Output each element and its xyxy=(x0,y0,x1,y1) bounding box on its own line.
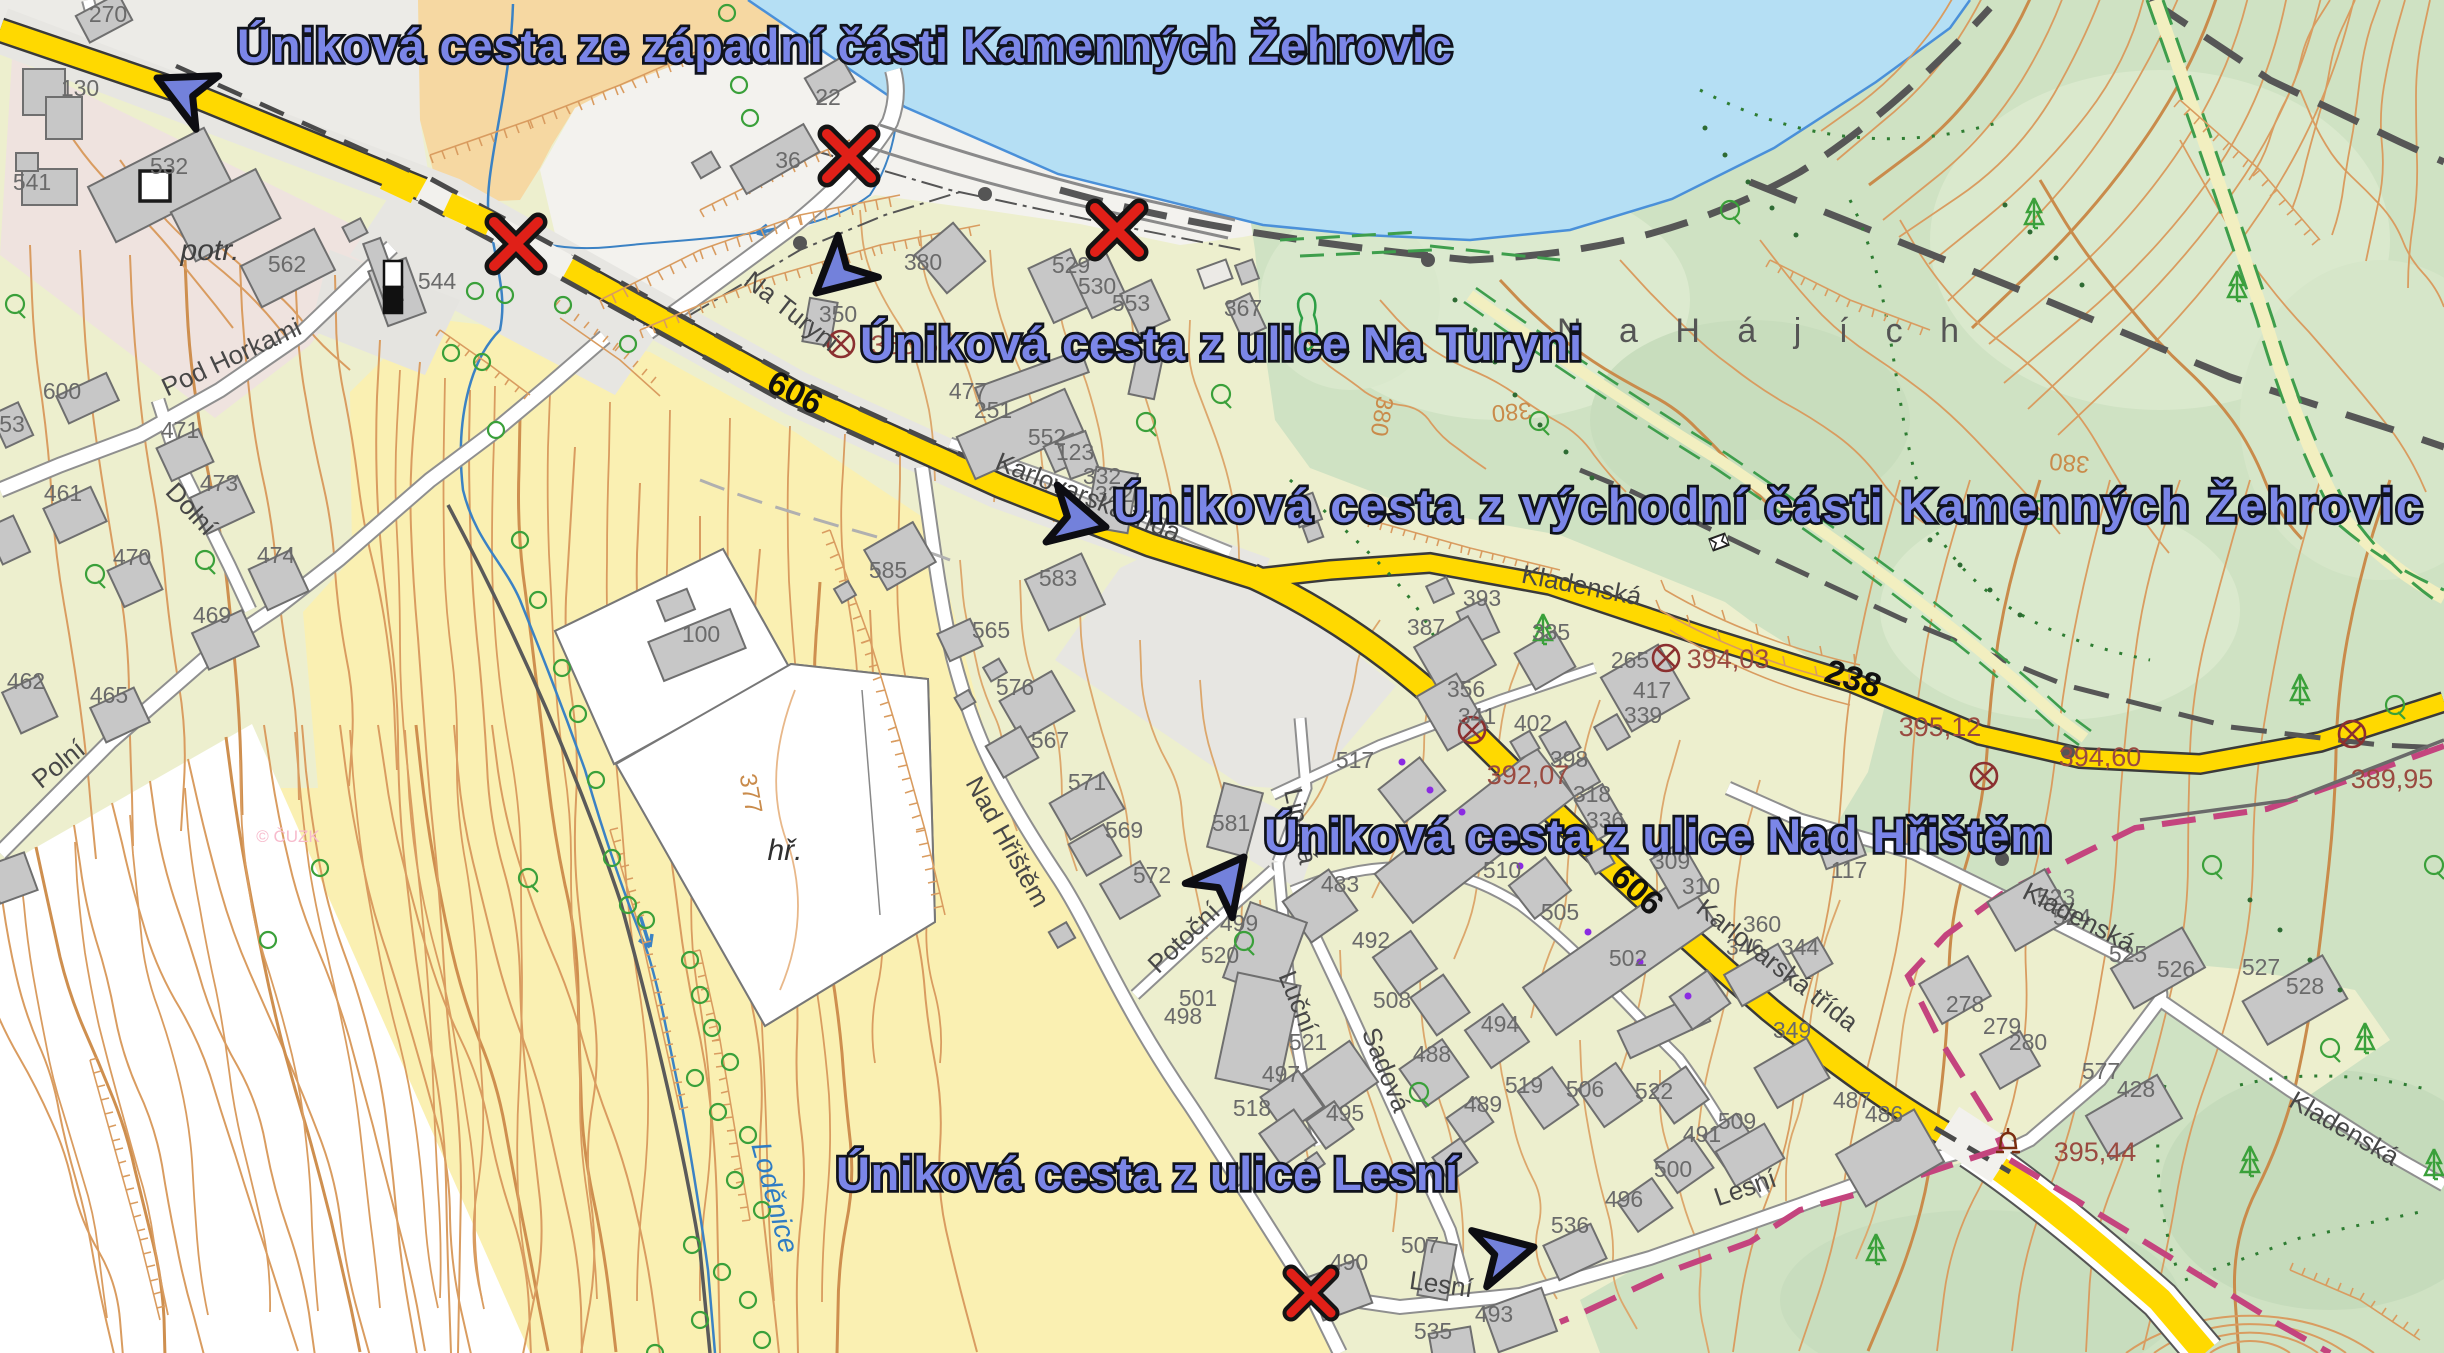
svg-text:565: 565 xyxy=(972,617,1010,643)
svg-text:335: 335 xyxy=(1532,619,1570,645)
svg-text:471: 471 xyxy=(161,417,199,443)
svg-text:530: 530 xyxy=(1078,273,1116,299)
svg-text:402: 402 xyxy=(1514,710,1552,736)
svg-text:502: 502 xyxy=(1609,945,1647,971)
svg-text:498: 498 xyxy=(1164,1003,1202,1029)
svg-text:473: 473 xyxy=(200,470,238,496)
svg-text:341: 341 xyxy=(1458,703,1496,729)
svg-text:N a H á j í c h: N a H á j í c h xyxy=(1557,312,1973,350)
svg-text:356: 356 xyxy=(1447,676,1485,702)
svg-text:585: 585 xyxy=(869,557,907,583)
svg-text:581: 581 xyxy=(1212,810,1250,836)
svg-text:499: 499 xyxy=(1220,910,1258,936)
svg-text:270: 270 xyxy=(89,1,127,27)
svg-text:393: 393 xyxy=(1463,585,1501,611)
svg-text:541: 541 xyxy=(13,169,51,195)
svg-text:497: 497 xyxy=(1262,1061,1300,1087)
svg-text:395,12: 395,12 xyxy=(1899,712,1982,742)
svg-text:462: 462 xyxy=(7,668,45,694)
svg-text:492: 492 xyxy=(1352,927,1390,953)
svg-text:506: 506 xyxy=(1566,1076,1604,1102)
svg-text:Úniková cesta z ulice Na Turyn: Úniková cesta z ulice Na Turyni xyxy=(860,317,1582,370)
svg-text:553: 553 xyxy=(1112,290,1150,316)
svg-text:Úniková cesta ze západní části: Úniková cesta ze západní části Kamenných… xyxy=(237,19,1452,72)
svg-text:Úniková cesta z ulice Nad Hřiš: Úniková cesta z ulice Nad Hřištěm xyxy=(1264,809,2052,862)
svg-text:507: 507 xyxy=(1401,1232,1439,1258)
svg-text:517: 517 xyxy=(1336,747,1374,773)
svg-text:392,07: 392,07 xyxy=(1487,760,1570,790)
svg-text:583: 583 xyxy=(1039,565,1077,591)
svg-text:potr.: potr. xyxy=(180,234,240,267)
svg-text:569: 569 xyxy=(1105,817,1143,843)
svg-text:535: 535 xyxy=(1414,1318,1452,1344)
svg-text:394,03: 394,03 xyxy=(1687,644,1770,674)
svg-text:576: 576 xyxy=(996,674,1034,700)
svg-text:387: 387 xyxy=(1407,614,1445,640)
svg-text:496: 496 xyxy=(1605,1186,1643,1212)
svg-text:518: 518 xyxy=(1233,1095,1271,1121)
svg-text:465: 465 xyxy=(90,682,128,708)
svg-text:470: 470 xyxy=(113,544,151,570)
svg-text:469: 469 xyxy=(193,602,231,628)
svg-text:© ČUZK: © ČUZK xyxy=(256,827,320,846)
svg-text:130: 130 xyxy=(61,75,99,101)
svg-text:53: 53 xyxy=(0,411,25,437)
svg-text:528: 528 xyxy=(2286,973,2324,999)
svg-text:567: 567 xyxy=(1031,727,1069,753)
svg-text:280: 280 xyxy=(2009,1029,2047,1055)
svg-text:500: 500 xyxy=(1654,1156,1692,1182)
svg-text:493: 493 xyxy=(1475,1301,1513,1327)
svg-text:Úniková cesta z východní části: Úniková cesta z východní části Kamenných… xyxy=(1113,479,2422,532)
svg-text:Úniková cesta z ulice Lesní: Úniková cesta z ulice Lesní xyxy=(836,1147,1460,1200)
svg-text:417: 417 xyxy=(1633,677,1671,703)
svg-text:394,60: 394,60 xyxy=(2059,742,2142,772)
svg-text:123: 123 xyxy=(1056,439,1094,465)
svg-text:380: 380 xyxy=(1491,396,1533,426)
svg-text:526: 526 xyxy=(2157,956,2195,982)
svg-text:380: 380 xyxy=(2048,447,2090,477)
svg-text:486: 486 xyxy=(1865,1101,1903,1127)
svg-text:22: 22 xyxy=(815,84,841,110)
svg-text:489: 489 xyxy=(1464,1091,1502,1117)
svg-text:600: 600 xyxy=(43,378,81,404)
svg-text:522: 522 xyxy=(1635,1078,1673,1104)
svg-text:395,44: 395,44 xyxy=(2054,1137,2137,1167)
svg-text:505: 505 xyxy=(1541,899,1579,925)
svg-text:572: 572 xyxy=(1133,862,1171,888)
svg-text:36: 36 xyxy=(775,147,801,173)
svg-text:hř.: hř. xyxy=(767,834,802,867)
svg-text:494: 494 xyxy=(1481,1011,1520,1037)
svg-text:520: 520 xyxy=(1201,942,1239,968)
svg-text:251: 251 xyxy=(974,397,1012,423)
svg-text:495: 495 xyxy=(1326,1100,1364,1126)
svg-text:265: 265 xyxy=(1611,647,1649,673)
svg-text:519: 519 xyxy=(1505,1072,1543,1098)
svg-text:536: 536 xyxy=(1551,1212,1589,1238)
svg-text:100: 100 xyxy=(682,621,720,647)
svg-text:474: 474 xyxy=(257,542,296,568)
svg-text:278: 278 xyxy=(1946,991,1984,1017)
svg-text:491: 491 xyxy=(1683,1121,1721,1147)
svg-text:428: 428 xyxy=(2117,1076,2155,1102)
svg-text:562: 562 xyxy=(268,251,306,277)
svg-text:310: 310 xyxy=(1682,873,1720,899)
svg-text:483: 483 xyxy=(1321,871,1359,897)
svg-text:318: 318 xyxy=(1573,781,1611,807)
svg-text:488: 488 xyxy=(1413,1041,1451,1067)
svg-text:508: 508 xyxy=(1373,987,1411,1013)
svg-text:544: 544 xyxy=(418,268,457,294)
svg-text:509: 509 xyxy=(1718,1108,1756,1134)
svg-text:521: 521 xyxy=(1289,1029,1327,1055)
svg-text:532: 532 xyxy=(150,153,188,179)
svg-text:571: 571 xyxy=(1068,769,1106,795)
svg-text:389,95: 389,95 xyxy=(2351,764,2434,794)
svg-text:339: 339 xyxy=(1624,702,1662,728)
svg-text:461: 461 xyxy=(44,480,82,506)
svg-text:349: 349 xyxy=(1773,1017,1811,1043)
svg-text:527: 527 xyxy=(2242,954,2280,980)
svg-text:577: 577 xyxy=(2082,1058,2120,1084)
svg-text:380: 380 xyxy=(904,249,942,275)
